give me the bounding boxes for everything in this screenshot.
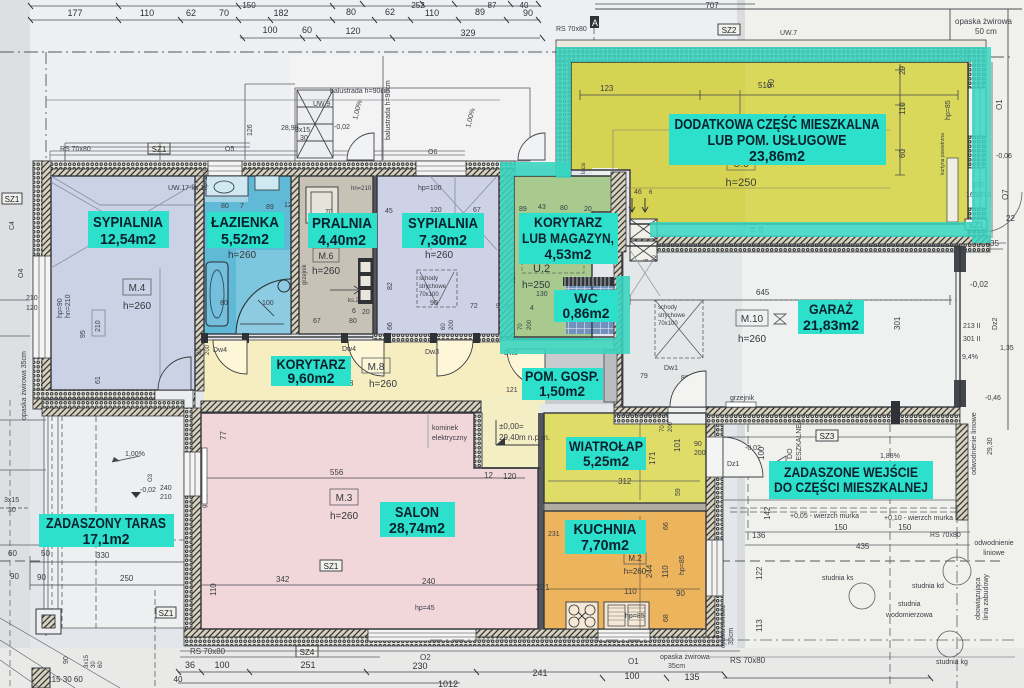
svg-text:120: 120 xyxy=(345,26,360,36)
svg-text:M.8: M.8 xyxy=(368,362,385,373)
svg-text:177: 177 xyxy=(67,8,82,18)
svg-text:36: 36 xyxy=(185,660,195,670)
svg-text:WC: WC xyxy=(574,290,598,306)
svg-text:150: 150 xyxy=(898,523,912,532)
svg-text:hp=90: hp=90 xyxy=(57,298,64,318)
svg-text:9,60m2: 9,60m2 xyxy=(288,370,335,386)
svg-text:hp=45: hp=45 xyxy=(415,605,435,612)
svg-text:645: 645 xyxy=(756,288,770,297)
svg-text:SALON: SALON xyxy=(395,504,439,521)
svg-text:113: 113 xyxy=(755,619,764,632)
svg-text:h=250: h=250 xyxy=(726,177,757,189)
svg-text:330: 330 xyxy=(96,551,110,560)
svg-text:182: 182 xyxy=(273,8,288,18)
svg-text:61: 61 xyxy=(95,376,102,384)
svg-text:67: 67 xyxy=(313,318,321,325)
svg-text:110: 110 xyxy=(624,587,637,596)
svg-text:210: 210 xyxy=(26,295,38,302)
svg-text:45: 45 xyxy=(385,208,393,215)
svg-text:12: 12 xyxy=(284,202,292,209)
svg-text:200: 200 xyxy=(668,421,674,432)
svg-text:SZ1: SZ1 xyxy=(5,195,20,204)
svg-text:200: 200 xyxy=(694,450,706,457)
svg-text:elektryczny: elektryczny xyxy=(432,435,468,442)
svg-text:70: 70 xyxy=(518,323,524,330)
svg-text:46: 46 xyxy=(634,189,642,196)
svg-text:80: 80 xyxy=(560,205,568,212)
svg-text:-0,02: -0,02 xyxy=(140,487,156,494)
svg-text:4: 4 xyxy=(530,305,534,312)
svg-text:17,1m2: 17,1m2 xyxy=(83,531,130,548)
svg-text:329: 329 xyxy=(460,28,475,38)
svg-text:M.4: M.4 xyxy=(129,283,146,294)
svg-text:90: 90 xyxy=(676,589,685,598)
svg-text:7,70m2: 7,70m2 xyxy=(581,537,629,554)
svg-text:250: 250 xyxy=(120,574,134,583)
svg-text:241: 241 xyxy=(532,668,547,678)
svg-text:1,50m2: 1,50m2 xyxy=(539,383,585,399)
svg-text:110: 110 xyxy=(898,102,907,115)
svg-text:-0,06: -0,06 xyxy=(996,153,1012,160)
svg-text:M.3: M.3 xyxy=(336,493,353,504)
svg-text:12: 12 xyxy=(484,471,493,480)
svg-text:h=260: h=260 xyxy=(312,266,341,277)
svg-text:210: 210 xyxy=(160,494,172,501)
svg-text:5,52m2: 5,52m2 xyxy=(221,231,269,248)
svg-text:100: 100 xyxy=(624,671,639,681)
svg-text:±0,00=: ±0,00= xyxy=(499,422,524,431)
svg-text:odwodnienie: odwodnienie xyxy=(974,540,1013,547)
svg-text:O3: O3 xyxy=(148,473,154,482)
svg-text:Dz1: Dz1 xyxy=(727,461,740,468)
svg-text:0,86m2: 0,86m2 xyxy=(563,305,610,321)
svg-text:M.10: M.10 xyxy=(741,314,764,325)
svg-text:35: 35 xyxy=(990,239,999,248)
svg-text:126: 126 xyxy=(247,124,254,136)
svg-text:70: 70 xyxy=(219,8,229,18)
svg-text:odwodnienie liniowe: odwodnienie liniowe xyxy=(971,412,978,475)
svg-text:80: 80 xyxy=(220,300,228,307)
svg-text:SZ1: SZ1 xyxy=(324,562,339,571)
svg-text:1,88%: 1,88% xyxy=(880,453,900,460)
svg-text:Dw3: Dw3 xyxy=(425,349,439,356)
svg-text:120: 120 xyxy=(430,207,442,214)
svg-text:schody: schody xyxy=(419,276,438,282)
svg-text:SZ3: SZ3 xyxy=(820,432,835,441)
svg-text:100: 100 xyxy=(262,25,277,35)
svg-text:60: 60 xyxy=(8,549,17,558)
svg-text:100: 100 xyxy=(262,300,274,307)
svg-text:200: 200 xyxy=(527,319,533,330)
svg-text:KORYTARZ: KORYTARZ xyxy=(534,214,602,230)
svg-text:87: 87 xyxy=(488,1,497,10)
svg-text:RS 70x80: RS 70x80 xyxy=(730,656,766,665)
svg-text:kominek: kominek xyxy=(432,425,459,432)
svg-text:h=260: h=260 xyxy=(624,567,647,576)
svg-text:opaska żwirowa: opaska żwirowa xyxy=(660,654,710,661)
svg-text:hn=210: hn=210 xyxy=(351,186,372,192)
svg-text:20: 20 xyxy=(584,206,592,213)
svg-text:66: 66 xyxy=(663,522,670,530)
svg-text:UW.9: UW.9 xyxy=(313,101,330,108)
svg-text:110: 110 xyxy=(425,8,439,18)
svg-text:ZADASZONE WEJŚCIE: ZADASZONE WEJŚCIE xyxy=(784,463,918,480)
svg-text:O4: O4 xyxy=(18,269,25,278)
svg-text:110: 110 xyxy=(209,583,218,596)
svg-text:59: 59 xyxy=(675,488,682,496)
svg-text:A: A xyxy=(592,18,598,28)
svg-text:29,40m n.p.m.: 29,40m n.p.m. xyxy=(499,433,550,442)
svg-text:90: 90 xyxy=(694,441,702,448)
svg-text:grzejnik: grzejnik xyxy=(302,263,308,285)
svg-text:h=250: h=250 xyxy=(522,280,551,291)
svg-text:liniowe: liniowe xyxy=(983,550,1005,557)
svg-text:Dz2: Dz2 xyxy=(992,317,999,330)
svg-text:312: 312 xyxy=(618,477,632,486)
svg-text:80: 80 xyxy=(197,348,203,355)
svg-text:89: 89 xyxy=(519,206,527,213)
svg-text:opaska żwirowa: opaska żwirowa xyxy=(955,17,1012,26)
svg-text:studnia kg: studnia kg xyxy=(936,659,968,666)
svg-text:130: 130 xyxy=(536,291,548,298)
svg-text:240: 240 xyxy=(422,577,436,586)
svg-text:43: 43 xyxy=(538,204,546,211)
svg-text:110: 110 xyxy=(661,565,670,578)
svg-text:122: 122 xyxy=(755,566,764,580)
svg-text:82: 82 xyxy=(387,282,394,290)
svg-text:79: 79 xyxy=(640,373,648,380)
svg-text:90: 90 xyxy=(430,300,438,307)
svg-text:213 II: 213 II xyxy=(963,323,981,330)
svg-text:O2: O2 xyxy=(420,653,431,662)
svg-text:ks.2: ks.2 xyxy=(348,298,360,304)
svg-text:hp=120: hp=120 xyxy=(203,169,209,190)
svg-text:balustrada h=90cm: balustrada h=90cm xyxy=(330,88,390,95)
svg-text:252: 252 xyxy=(411,1,425,10)
svg-text:90: 90 xyxy=(767,79,776,88)
svg-text:schody: schody xyxy=(658,305,677,311)
svg-text:strychowe: strychowe xyxy=(419,284,447,290)
svg-text:28,74m2: 28,74m2 xyxy=(389,520,445,537)
svg-text:ZADASZONY TARAS: ZADASZONY TARAS xyxy=(46,515,166,532)
svg-text:4,53m2: 4,53m2 xyxy=(545,246,592,262)
svg-text:68: 68 xyxy=(663,614,670,622)
svg-text:150: 150 xyxy=(242,1,256,10)
svg-text:-0,02: -0,02 xyxy=(334,124,350,131)
svg-text:RS 70x80: RS 70x80 xyxy=(930,532,961,539)
svg-text:150: 150 xyxy=(834,523,848,532)
svg-text:opaska żwirowa: opaska żwirowa xyxy=(721,605,727,648)
svg-text:h=260: h=260 xyxy=(425,250,454,261)
svg-text:7: 7 xyxy=(240,203,244,210)
svg-text:wodomierzowa: wodomierzowa xyxy=(885,612,933,619)
svg-text:9,4%: 9,4% xyxy=(962,354,978,361)
svg-text:342: 342 xyxy=(276,575,290,584)
svg-text:110: 110 xyxy=(140,8,154,18)
svg-text:O1: O1 xyxy=(628,657,639,666)
svg-text:1012: 1012 xyxy=(438,679,458,688)
svg-text:studnia: studnia xyxy=(898,601,921,608)
svg-text:101: 101 xyxy=(673,438,682,452)
svg-text:89: 89 xyxy=(266,204,274,211)
svg-text:70: 70 xyxy=(660,425,666,432)
svg-text:Dw1: Dw1 xyxy=(664,365,678,372)
svg-text:hn=210: hn=210 xyxy=(65,294,72,318)
svg-text:60: 60 xyxy=(441,323,447,330)
svg-text:12,54m2: 12,54m2 xyxy=(100,231,156,248)
svg-text:29: 29 xyxy=(898,66,907,75)
svg-text:UW.17-ks.1: UW.17-ks.1 xyxy=(168,185,204,192)
svg-text:Dw4: Dw4 xyxy=(213,347,227,354)
svg-text:556: 556 xyxy=(330,468,344,477)
svg-text:3x15: 3x15 xyxy=(84,654,90,668)
svg-text:strychowe: strychowe xyxy=(658,313,686,319)
svg-text:60: 60 xyxy=(302,25,312,35)
svg-text:210: 210 xyxy=(95,320,102,332)
svg-text:30: 30 xyxy=(300,135,308,142)
svg-text:23,86m2: 23,86m2 xyxy=(749,148,805,165)
svg-text:4,40m2: 4,40m2 xyxy=(318,232,366,249)
svg-text:200: 200 xyxy=(449,319,455,330)
svg-text:135: 135 xyxy=(684,672,699,682)
svg-text:100: 100 xyxy=(214,660,229,670)
svg-text:PRALNIA: PRALNIA xyxy=(312,215,372,232)
svg-text:72: 72 xyxy=(470,303,478,310)
svg-text:hp=85: hp=85 xyxy=(945,100,952,120)
svg-text:laca: laca xyxy=(581,162,587,174)
svg-text:67: 67 xyxy=(473,207,481,214)
svg-text:28,90: 28,90 xyxy=(281,125,299,132)
svg-text:UW.7: UW.7 xyxy=(780,30,797,37)
svg-text:80: 80 xyxy=(221,203,229,210)
svg-text:60: 60 xyxy=(98,661,104,668)
svg-text:35cm: 35cm xyxy=(668,663,685,670)
svg-text:ŁAZIENKA: ŁAZIENKA xyxy=(211,214,279,231)
svg-text:DODATKOWA CZĘŚĆ MIESZKALNA: DODATKOWA CZĘŚĆ MIESZKALNA xyxy=(675,115,880,133)
svg-text:h=260: h=260 xyxy=(123,301,152,312)
svg-text:90: 90 xyxy=(10,572,19,581)
svg-text:30: 30 xyxy=(91,661,97,668)
svg-text:121: 121 xyxy=(506,387,518,394)
svg-text:66: 66 xyxy=(387,322,394,330)
svg-text:80: 80 xyxy=(349,318,357,325)
svg-text:6: 6 xyxy=(352,308,356,315)
svg-text:240: 240 xyxy=(160,485,172,492)
svg-text:obowiązująca: obowiązująca xyxy=(975,577,982,620)
svg-text:50: 50 xyxy=(41,549,50,558)
svg-text:hp=85: hp=85 xyxy=(625,613,645,620)
svg-text:+0,10 - wierzch murka: +0,10 - wierzch murka xyxy=(884,515,953,522)
svg-text:70x100: 70x100 xyxy=(658,321,678,327)
svg-text:O7: O7 xyxy=(1001,189,1010,200)
svg-text:RS 70x80: RS 70x80 xyxy=(556,26,587,33)
svg-text:50 cm: 50 cm xyxy=(975,27,997,36)
svg-text:hp=85: hp=85 xyxy=(679,555,686,575)
svg-text:171: 171 xyxy=(648,451,657,465)
svg-text:142: 142 xyxy=(763,506,772,520)
svg-text:DO CZĘŚCI MIESZKALNEJ: DO CZĘŚCI MIESZKALNEJ xyxy=(774,478,928,495)
svg-text:GARAŻ: GARAŻ xyxy=(809,301,853,317)
svg-text:301 II: 301 II xyxy=(963,336,981,343)
svg-text:opaska żwirowa 35cm: opaska żwirowa 35cm xyxy=(21,351,28,420)
svg-text:136: 136 xyxy=(752,531,766,540)
svg-text:20: 20 xyxy=(362,309,370,316)
svg-text:Dw4: Dw4 xyxy=(342,346,356,353)
svg-text:M.6: M.6 xyxy=(318,251,333,261)
svg-text:RS 70x80: RS 70x80 xyxy=(190,647,226,656)
svg-text:231: 231 xyxy=(548,531,560,538)
svg-text:5,25m2: 5,25m2 xyxy=(583,453,629,469)
svg-text:95: 95 xyxy=(80,330,87,338)
svg-text:KUCHNIA: KUCHNIA xyxy=(574,521,637,538)
svg-text:231: 231 xyxy=(536,583,550,592)
svg-text:balustrada h=90cm: balustrada h=90cm xyxy=(385,80,392,140)
svg-text:244: 244 xyxy=(645,564,654,578)
svg-text:90: 90 xyxy=(37,573,46,582)
svg-text:h=260: h=260 xyxy=(738,334,767,345)
svg-text:studnia kd: studnia kd xyxy=(912,583,944,590)
svg-text:SZ2: SZ2 xyxy=(722,26,737,35)
svg-text:80: 80 xyxy=(346,7,356,17)
svg-text:linia zabudowy: linia zabudowy xyxy=(983,574,990,620)
svg-text:7,30m2: 7,30m2 xyxy=(419,232,467,249)
svg-text:90: 90 xyxy=(63,656,70,664)
svg-text:251: 251 xyxy=(300,660,315,670)
svg-text:29,30: 29,30 xyxy=(987,437,994,455)
svg-text:SYPIALNIA: SYPIALNIA xyxy=(408,215,478,232)
svg-text:230: 230 xyxy=(412,661,427,671)
svg-text:SZ4: SZ4 xyxy=(300,648,315,657)
svg-text:1,35: 1,35 xyxy=(1000,345,1014,352)
svg-text:40: 40 xyxy=(174,675,183,684)
svg-text:studnia ks: studnia ks xyxy=(822,575,854,582)
svg-text:POM. GOSP.: POM. GOSP. xyxy=(525,368,599,384)
svg-text:LUB MAGAZYN,: LUB MAGAZYN, xyxy=(522,230,614,246)
svg-text:O1: O1 xyxy=(995,99,1004,110)
svg-text:100: 100 xyxy=(757,446,766,460)
svg-text:3x15: 3x15 xyxy=(4,497,19,504)
svg-text:h=260: h=260 xyxy=(369,379,398,390)
svg-text:89: 89 xyxy=(475,7,485,17)
svg-text:SYPIALNIA: SYPIALNIA xyxy=(93,214,163,231)
svg-text:-0,02: -0,02 xyxy=(970,280,989,289)
svg-text:20: 20 xyxy=(652,255,658,262)
svg-text:hp=100: hp=100 xyxy=(418,185,442,192)
svg-text:grzejnik: grzejnik xyxy=(730,395,755,402)
svg-text:70x100: 70x100 xyxy=(419,292,439,298)
svg-text:WIATROŁAP: WIATROŁAP xyxy=(569,438,643,454)
svg-text:SZ1: SZ1 xyxy=(159,609,174,618)
svg-text:123: 123 xyxy=(600,84,614,93)
svg-text:435: 435 xyxy=(856,542,870,551)
svg-text:SZ1: SZ1 xyxy=(152,145,167,154)
svg-text:21,83m2: 21,83m2 xyxy=(803,317,859,333)
svg-text:h=260: h=260 xyxy=(228,250,257,261)
svg-text:77: 77 xyxy=(219,431,228,440)
svg-text:C4: C4 xyxy=(9,221,16,230)
svg-text:62: 62 xyxy=(186,8,196,18)
svg-text:22: 22 xyxy=(1006,214,1015,223)
svg-text:200: 200 xyxy=(205,344,211,355)
svg-text:62: 62 xyxy=(385,7,395,17)
svg-text:-0,46: -0,46 xyxy=(985,395,1001,402)
svg-text:35cm: 35cm xyxy=(728,628,735,645)
svg-text:120: 120 xyxy=(503,472,517,481)
svg-text:kurtyna powietrzna: kurtyna powietrzna xyxy=(940,133,946,175)
svg-text:40: 40 xyxy=(520,1,529,10)
svg-text:+0,05 - wierzch murka: +0,05 - wierzch murka xyxy=(790,513,859,520)
svg-text:301: 301 xyxy=(893,316,902,330)
svg-text:60: 60 xyxy=(898,149,907,158)
svg-text:LUB POM. USŁUGOWE: LUB POM. USŁUGOWE xyxy=(708,132,847,149)
svg-text:120: 120 xyxy=(26,305,38,312)
svg-text:h=260: h=260 xyxy=(330,511,359,522)
